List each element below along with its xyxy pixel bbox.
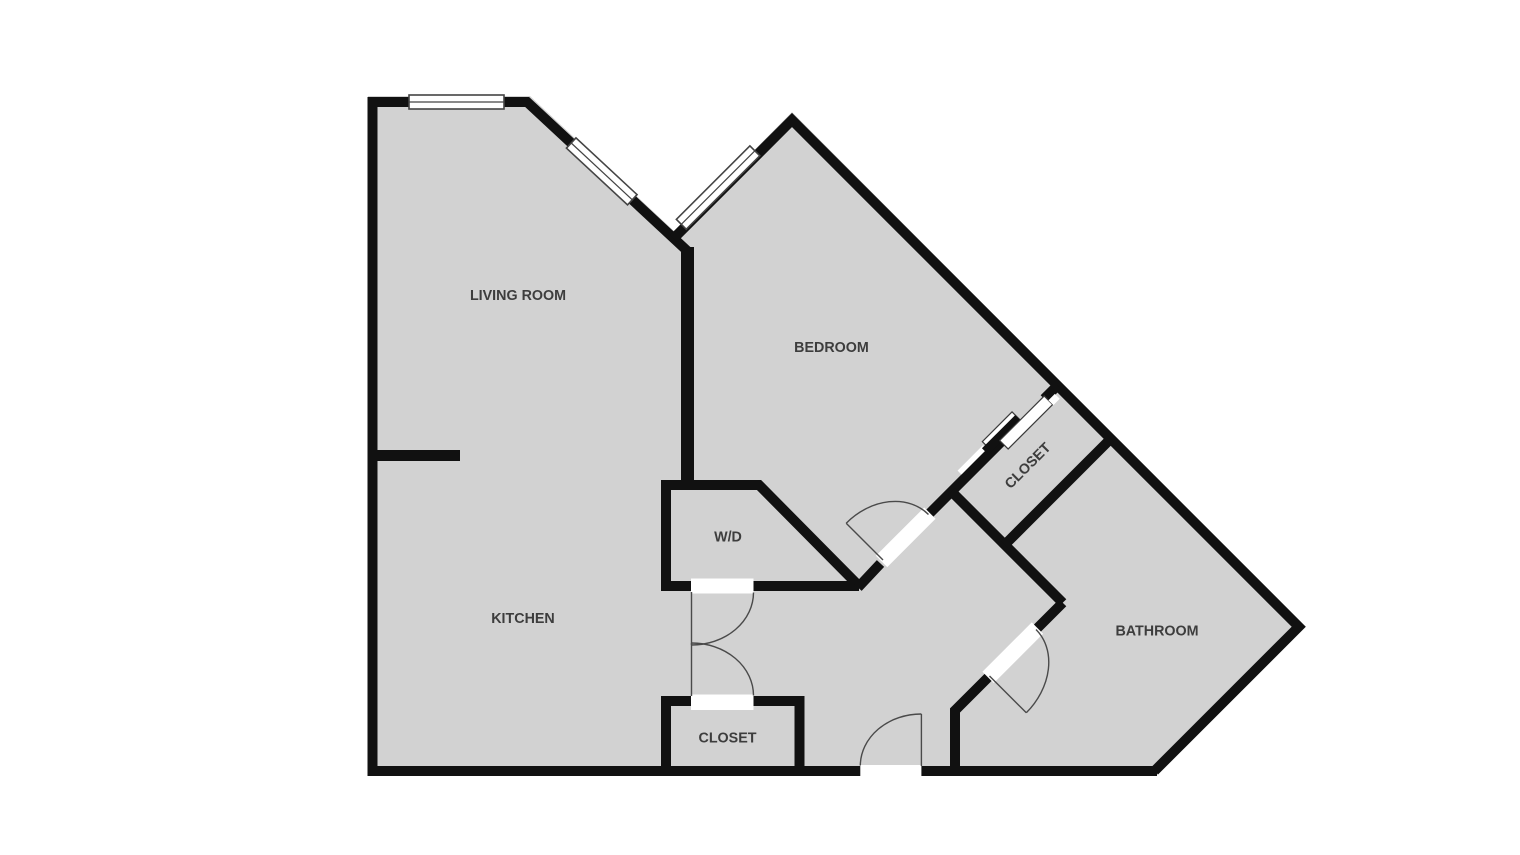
svg-text:BATHROOM: BATHROOM <box>1115 624 1198 640</box>
svg-text:CLOSET: CLOSET <box>699 731 757 747</box>
svg-text:BEDROOM: BEDROOM <box>794 340 869 356</box>
svg-text:W/D: W/D <box>714 530 742 546</box>
svg-text:KITCHEN: KITCHEN <box>491 611 555 627</box>
svg-text:LIVING ROOM: LIVING ROOM <box>470 288 566 304</box>
